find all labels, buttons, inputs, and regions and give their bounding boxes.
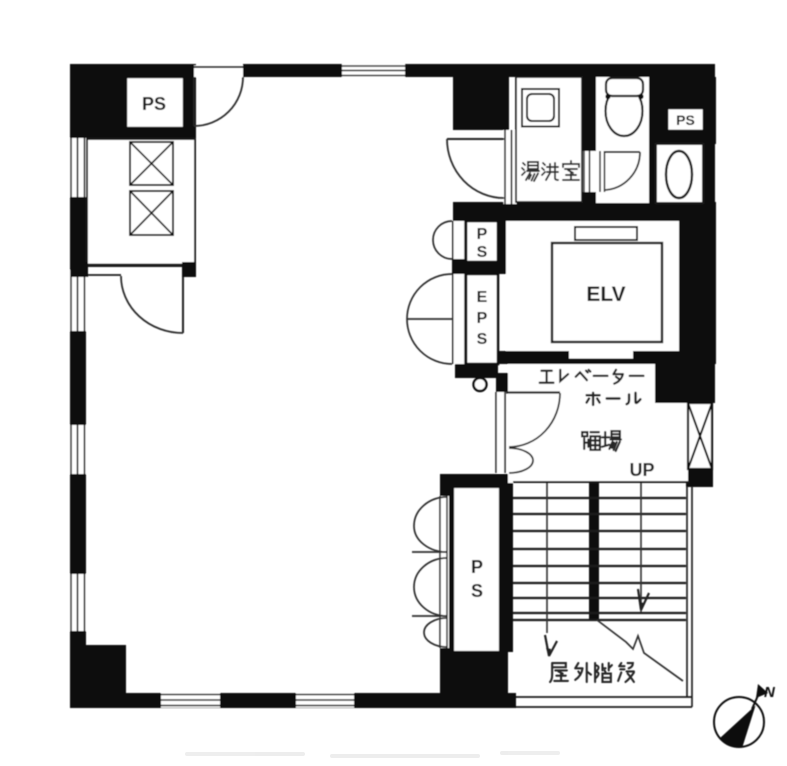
svg-text:N: N bbox=[764, 684, 776, 701]
svg-text:S: S bbox=[477, 331, 488, 348]
svg-text:PS: PS bbox=[142, 94, 166, 114]
svg-text:PS: PS bbox=[676, 112, 695, 128]
svg-text:S: S bbox=[477, 244, 488, 261]
svg-text:ELV: ELV bbox=[586, 283, 625, 306]
svg-text:P: P bbox=[477, 226, 488, 243]
svg-text:S: S bbox=[471, 581, 483, 601]
svg-text:UP: UP bbox=[629, 460, 654, 480]
svg-text:E: E bbox=[477, 289, 488, 306]
svg-text:P: P bbox=[471, 557, 483, 577]
svg-text:P: P bbox=[477, 310, 488, 327]
